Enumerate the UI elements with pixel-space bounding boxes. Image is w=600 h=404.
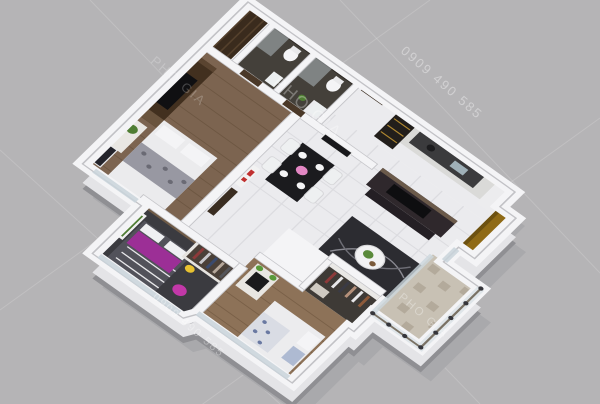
- apartment-3d-render: 0909 490 585: [0, 0, 600, 404]
